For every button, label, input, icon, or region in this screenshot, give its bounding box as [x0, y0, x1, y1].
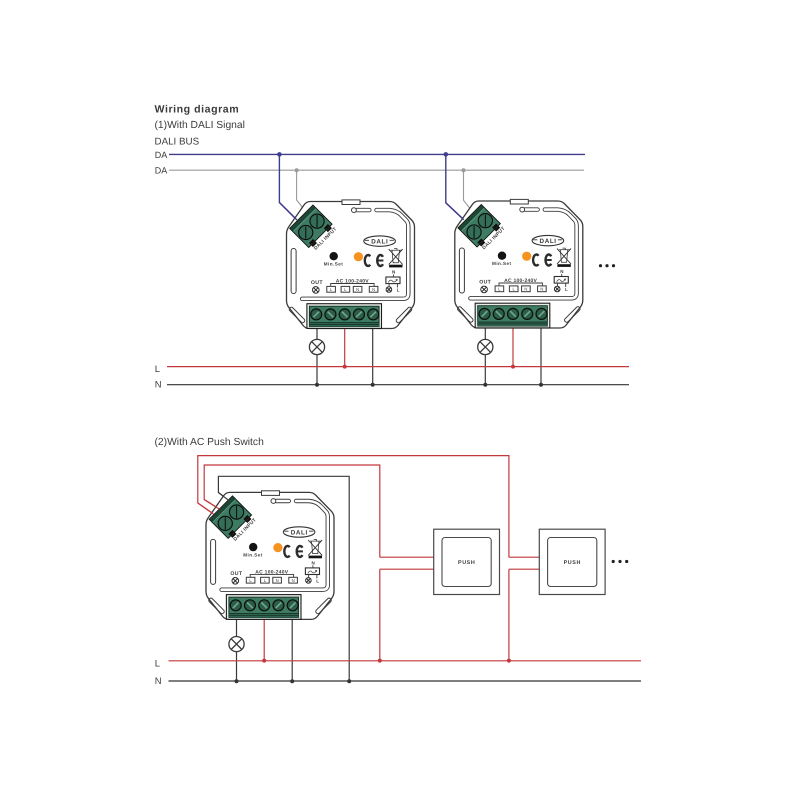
- svg-text:L: L: [155, 657, 160, 668]
- svg-text:(2)With AC Push Switch: (2)With AC Push Switch: [155, 437, 265, 448]
- svg-text:N: N: [155, 675, 162, 686]
- svg-text:Wiring diagram: Wiring diagram: [155, 104, 240, 116]
- svg-text:(1)With DALI Signal: (1)With DALI Signal: [155, 120, 245, 131]
- svg-text:L: L: [155, 363, 160, 374]
- svg-text:DA: DA: [155, 150, 168, 160]
- svg-text:DALI BUS: DALI BUS: [155, 137, 200, 148]
- svg-text:DA: DA: [155, 166, 168, 176]
- svg-text:N: N: [155, 379, 162, 390]
